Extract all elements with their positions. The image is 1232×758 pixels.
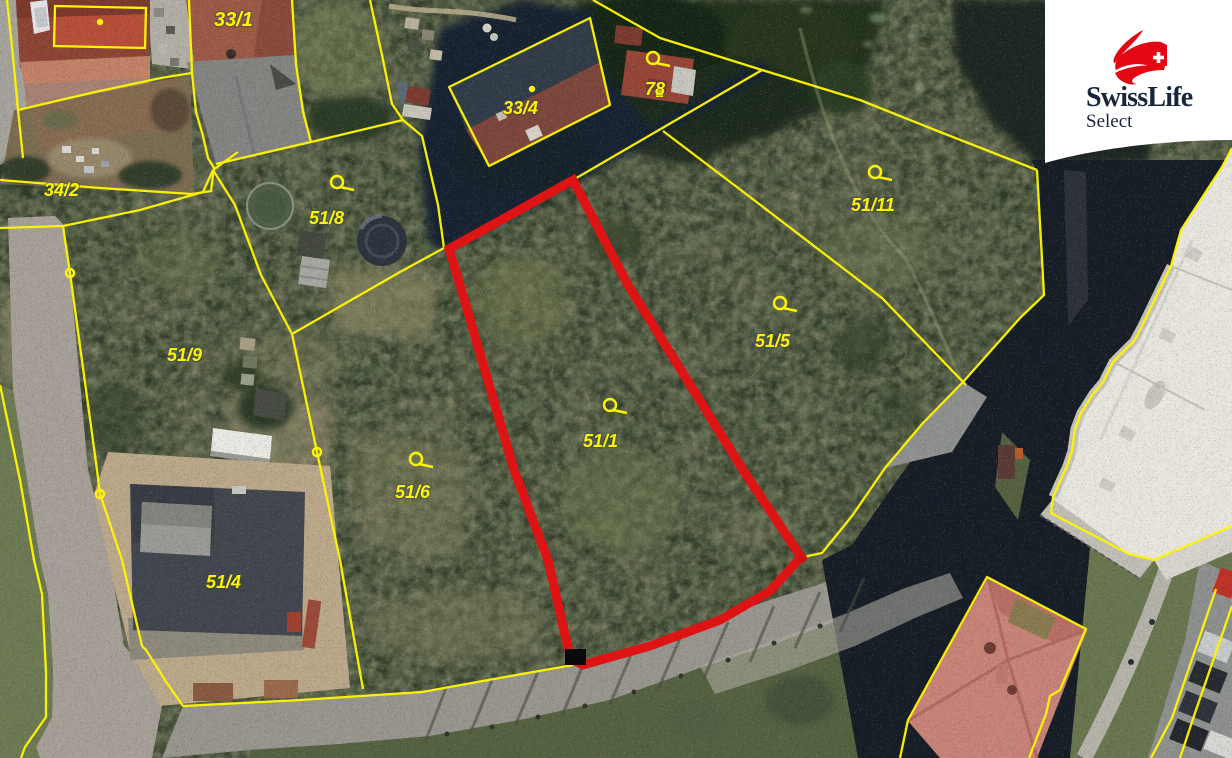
svg-text:Select: Select: [1086, 111, 1133, 132]
svg-text:51/8: 51/8: [309, 208, 344, 228]
svg-text:33/1: 33/1: [214, 9, 253, 31]
svg-text:51/9: 51/9: [167, 345, 202, 365]
svg-text:33/4: 33/4: [503, 98, 538, 118]
svg-text:78: 78: [645, 79, 665, 99]
svg-text:51/1: 51/1: [583, 431, 618, 451]
svg-text:34/2: 34/2: [44, 180, 79, 200]
svg-text:SwissLife: SwissLife: [1086, 82, 1193, 113]
svg-text:51/6: 51/6: [395, 482, 431, 502]
svg-text:51/5: 51/5: [755, 331, 791, 351]
svg-text:51/4: 51/4: [206, 572, 241, 592]
svg-text:51/11: 51/11: [851, 195, 895, 215]
